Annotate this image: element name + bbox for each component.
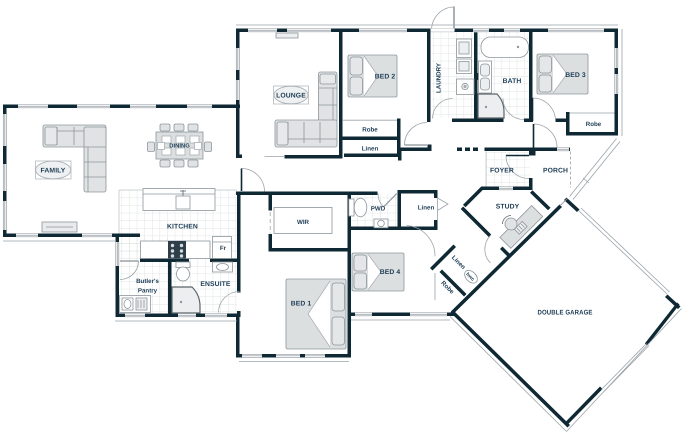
svg-text:DINING: DINING (169, 142, 190, 149)
svg-text:BED 3: BED 3 (565, 72, 586, 79)
svg-text:PORCH: PORCH (543, 168, 568, 175)
svg-text:Robe: Robe (586, 121, 602, 128)
svg-text:Robe: Robe (362, 127, 378, 134)
svg-text:Fr: Fr (220, 245, 227, 252)
svg-text:WIR: WIR (297, 219, 310, 226)
svg-text:KITCHEN: KITCHEN (167, 224, 198, 231)
svg-text:BED 4: BED 4 (380, 269, 401, 276)
svg-text:Pantry: Pantry (138, 288, 158, 295)
svg-text:STUDY: STUDY (496, 204, 520, 211)
svg-text:FOYER: FOYER (490, 168, 514, 175)
svg-text:LOUNGE: LOUNGE (276, 93, 306, 100)
svg-text:ENSUITE: ENSUITE (200, 281, 231, 288)
svg-text:Butler's: Butler's (136, 278, 159, 285)
svg-text:DOUBLE GARAGE: DOUBLE GARAGE (538, 310, 593, 317)
svg-text:FAMILY: FAMILY (41, 168, 66, 175)
svg-text:Linen: Linen (418, 205, 435, 212)
svg-text:PWD: PWD (371, 206, 386, 213)
svg-text:Linen: Linen (362, 146, 379, 153)
svg-text:LAUNDRY: LAUNDRY (436, 62, 443, 93)
svg-text:BED 1: BED 1 (291, 301, 312, 308)
svg-text:BATH: BATH (503, 78, 522, 85)
svg-text:BED 2: BED 2 (375, 74, 396, 81)
